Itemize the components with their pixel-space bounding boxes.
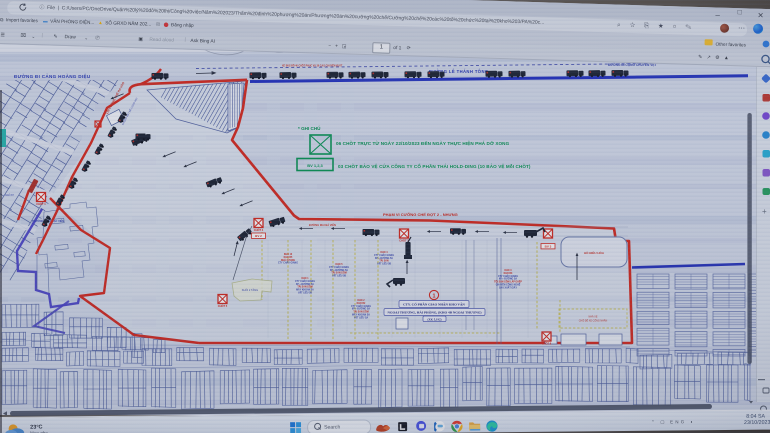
svg-text:SAU XUẤT GIẤY: SAU XUẤT GIẤY	[499, 286, 517, 289]
svg-text:NHÀ XƯởNG: NHÀ XƯởNG	[281, 259, 295, 262]
svg-text:KHO B2: KHO B2	[357, 303, 366, 305]
svg-text:(XK 5,192): (XK 5,192)	[428, 317, 442, 321]
svg-text:VẬT LIỆU SA: VẬT LIỆU SA	[354, 316, 369, 319]
svg-text:TÀI SẢN: TÀI SẢN	[379, 260, 389, 263]
svg-text:NGOẠI THƯƠNG, HẢI PHÒNG, (KHO: NGOẠI THƯƠNG, HẢI PHÒNG, (KHO 4B NGOẠI T…	[387, 310, 481, 315]
svg-text:6P + ĐƯỜNG SA: 6P + ĐƯỜNG SA	[352, 308, 371, 311]
svg-text:TỒI SẢN GỒM LẮP GHÉP: TỒI SẢN GỒM LẮP GHÉP	[494, 281, 522, 284]
svg-text:BV 2: BV 2	[255, 234, 262, 238]
svg-text:KHO 4: KHO 4	[380, 251, 388, 254]
svg-text:6P + ĐƯỜNG SA: 6P + ĐƯỜNG SA	[499, 278, 518, 281]
svg-text:CTY CHÂU GIANG: CTY CHÂU GIANG	[295, 280, 315, 283]
svg-text:PHẠM VI CƯỠNG CHẾ ĐỢT 2 - NHƯN: PHẠM VI CƯỠNG CHẾ ĐỢT 2 - NHƯNG	[383, 212, 458, 217]
svg-text:KHO B5: KHO B5	[284, 257, 293, 259]
svg-text:* GHI CHÚ: * GHI CHÚ	[298, 125, 321, 131]
svg-text:KHO 10: KHO 10	[284, 254, 293, 256]
svg-text:BV 3: BV 3	[545, 245, 552, 249]
svg-text:+: +	[762, 207, 767, 216]
svg-text:VẬT LIỆU 5B: VẬT LIỆU 5B	[332, 275, 346, 278]
svg-text:KHO B3: KHO B3	[504, 273, 513, 275]
svg-text:TÀI SẢN GỒM: TÀI SẢN GỒM	[297, 286, 312, 289]
svg-text:1: 1	[433, 293, 436, 299]
svg-text:KHO 2: KHO 2	[357, 300, 365, 302]
svg-text:HỒ ĐIỀU HÒA: HỒ ĐIỀU HÒA	[584, 250, 605, 255]
svg-text:CTY CHÂU GIANG: CTY CHÂU GIANG	[374, 254, 394, 257]
svg-text:TÀI SẢN GỒM: TÀI SẢN GỒM	[331, 272, 346, 275]
svg-text:BV 1,2,3: BV 1,2,3	[307, 163, 323, 168]
svg-text:CTY CHÂU GIANG: CTY CHÂU GIANG	[351, 305, 371, 308]
svg-text:XE BUS ĐỖ 40 CHỒT PHỤC VỤ 30 C: XE BUS ĐỖ 40 CHỒT PHỤC VỤ 30 CA/1 CHUYẾN…	[282, 65, 343, 68]
svg-text:KHO 3: KHO 3	[504, 270, 512, 272]
svg-text:CHUYỂN CÔNG NGHỆ: CHUYỂN CÔNG NGHỆ	[496, 284, 521, 287]
svg-text:KHO 5: KHO 5	[335, 264, 343, 266]
svg-text:6P + ĐƯỜNG 5A: 6P + ĐƯỜNG 5A	[330, 269, 348, 272]
svg-text:VẬT LIỆU 5B: VẬT LIỆU 5B	[298, 292, 312, 295]
svg-text:ĐƯỜNG ĐI CẢNG HOÀNG DIỆU: ĐƯỜNG ĐI CẢNG HOÀNG DIỆU	[14, 72, 91, 79]
svg-text:CTY CHÂU GIANG: CTY CHÂU GIANG	[329, 266, 349, 269]
svg-text:6P + ĐƯỜNG 5A: 6P + ĐƯỜNG 5A	[296, 283, 314, 286]
svg-text:KHO 1: KHO 1	[301, 278, 309, 280]
svg-text:6P + ĐƯỜNG 5A: 6P + ĐƯỜNG 5A	[375, 257, 393, 260]
svg-text:CTY CHÂU GIANG: CTY CHÂU GIANG	[498, 275, 518, 278]
svg-text:TÀI SẢN GỒM: TÀI SẢN GỒM	[353, 311, 368, 314]
svg-text:MÁY KHOAN 5A: MÁY KHOAN 5A	[296, 289, 314, 292]
svg-text:NGÕ 87: NGÕ 87	[5, 194, 14, 197]
svg-text:CTY CHÂU GIANG: CTY CHÂU GIANG	[278, 262, 298, 265]
svg-text:06 CHỒT TRỰC TỪ NGÀY 22/10/202: 06 CHỒT TRỰC TỪ NGÀY 22/10/2023 ĐẾN NGÀY…	[336, 139, 510, 146]
svg-text:CTY. CỔ PHẦN GIAO NHẬN KHO VẬN: CTY. CỔ PHẦN GIAO NHẬN KHO VẬN	[403, 302, 465, 307]
svg-text:NHÀ XE: NHÀ XE	[589, 316, 598, 319]
svg-text:MÁY KHOAN SA: MÁY KHOAN SA	[352, 314, 370, 317]
svg-text:VẬT LIỆU 5B: VẬT LIỆU 5B	[377, 263, 391, 266]
svg-text:03 CHỒT BẢO VỆ CỨA CÔNG TY CỔ: 03 CHỒT BẢO VỆ CỨA CÔNG TY CỔ PHẦN THÁI …	[338, 162, 531, 169]
svg-text:CHỘ ĐỂ XE CÔNG NHÂN: CHỘ ĐỂ XE CÔNG NHÂN	[579, 320, 608, 323]
